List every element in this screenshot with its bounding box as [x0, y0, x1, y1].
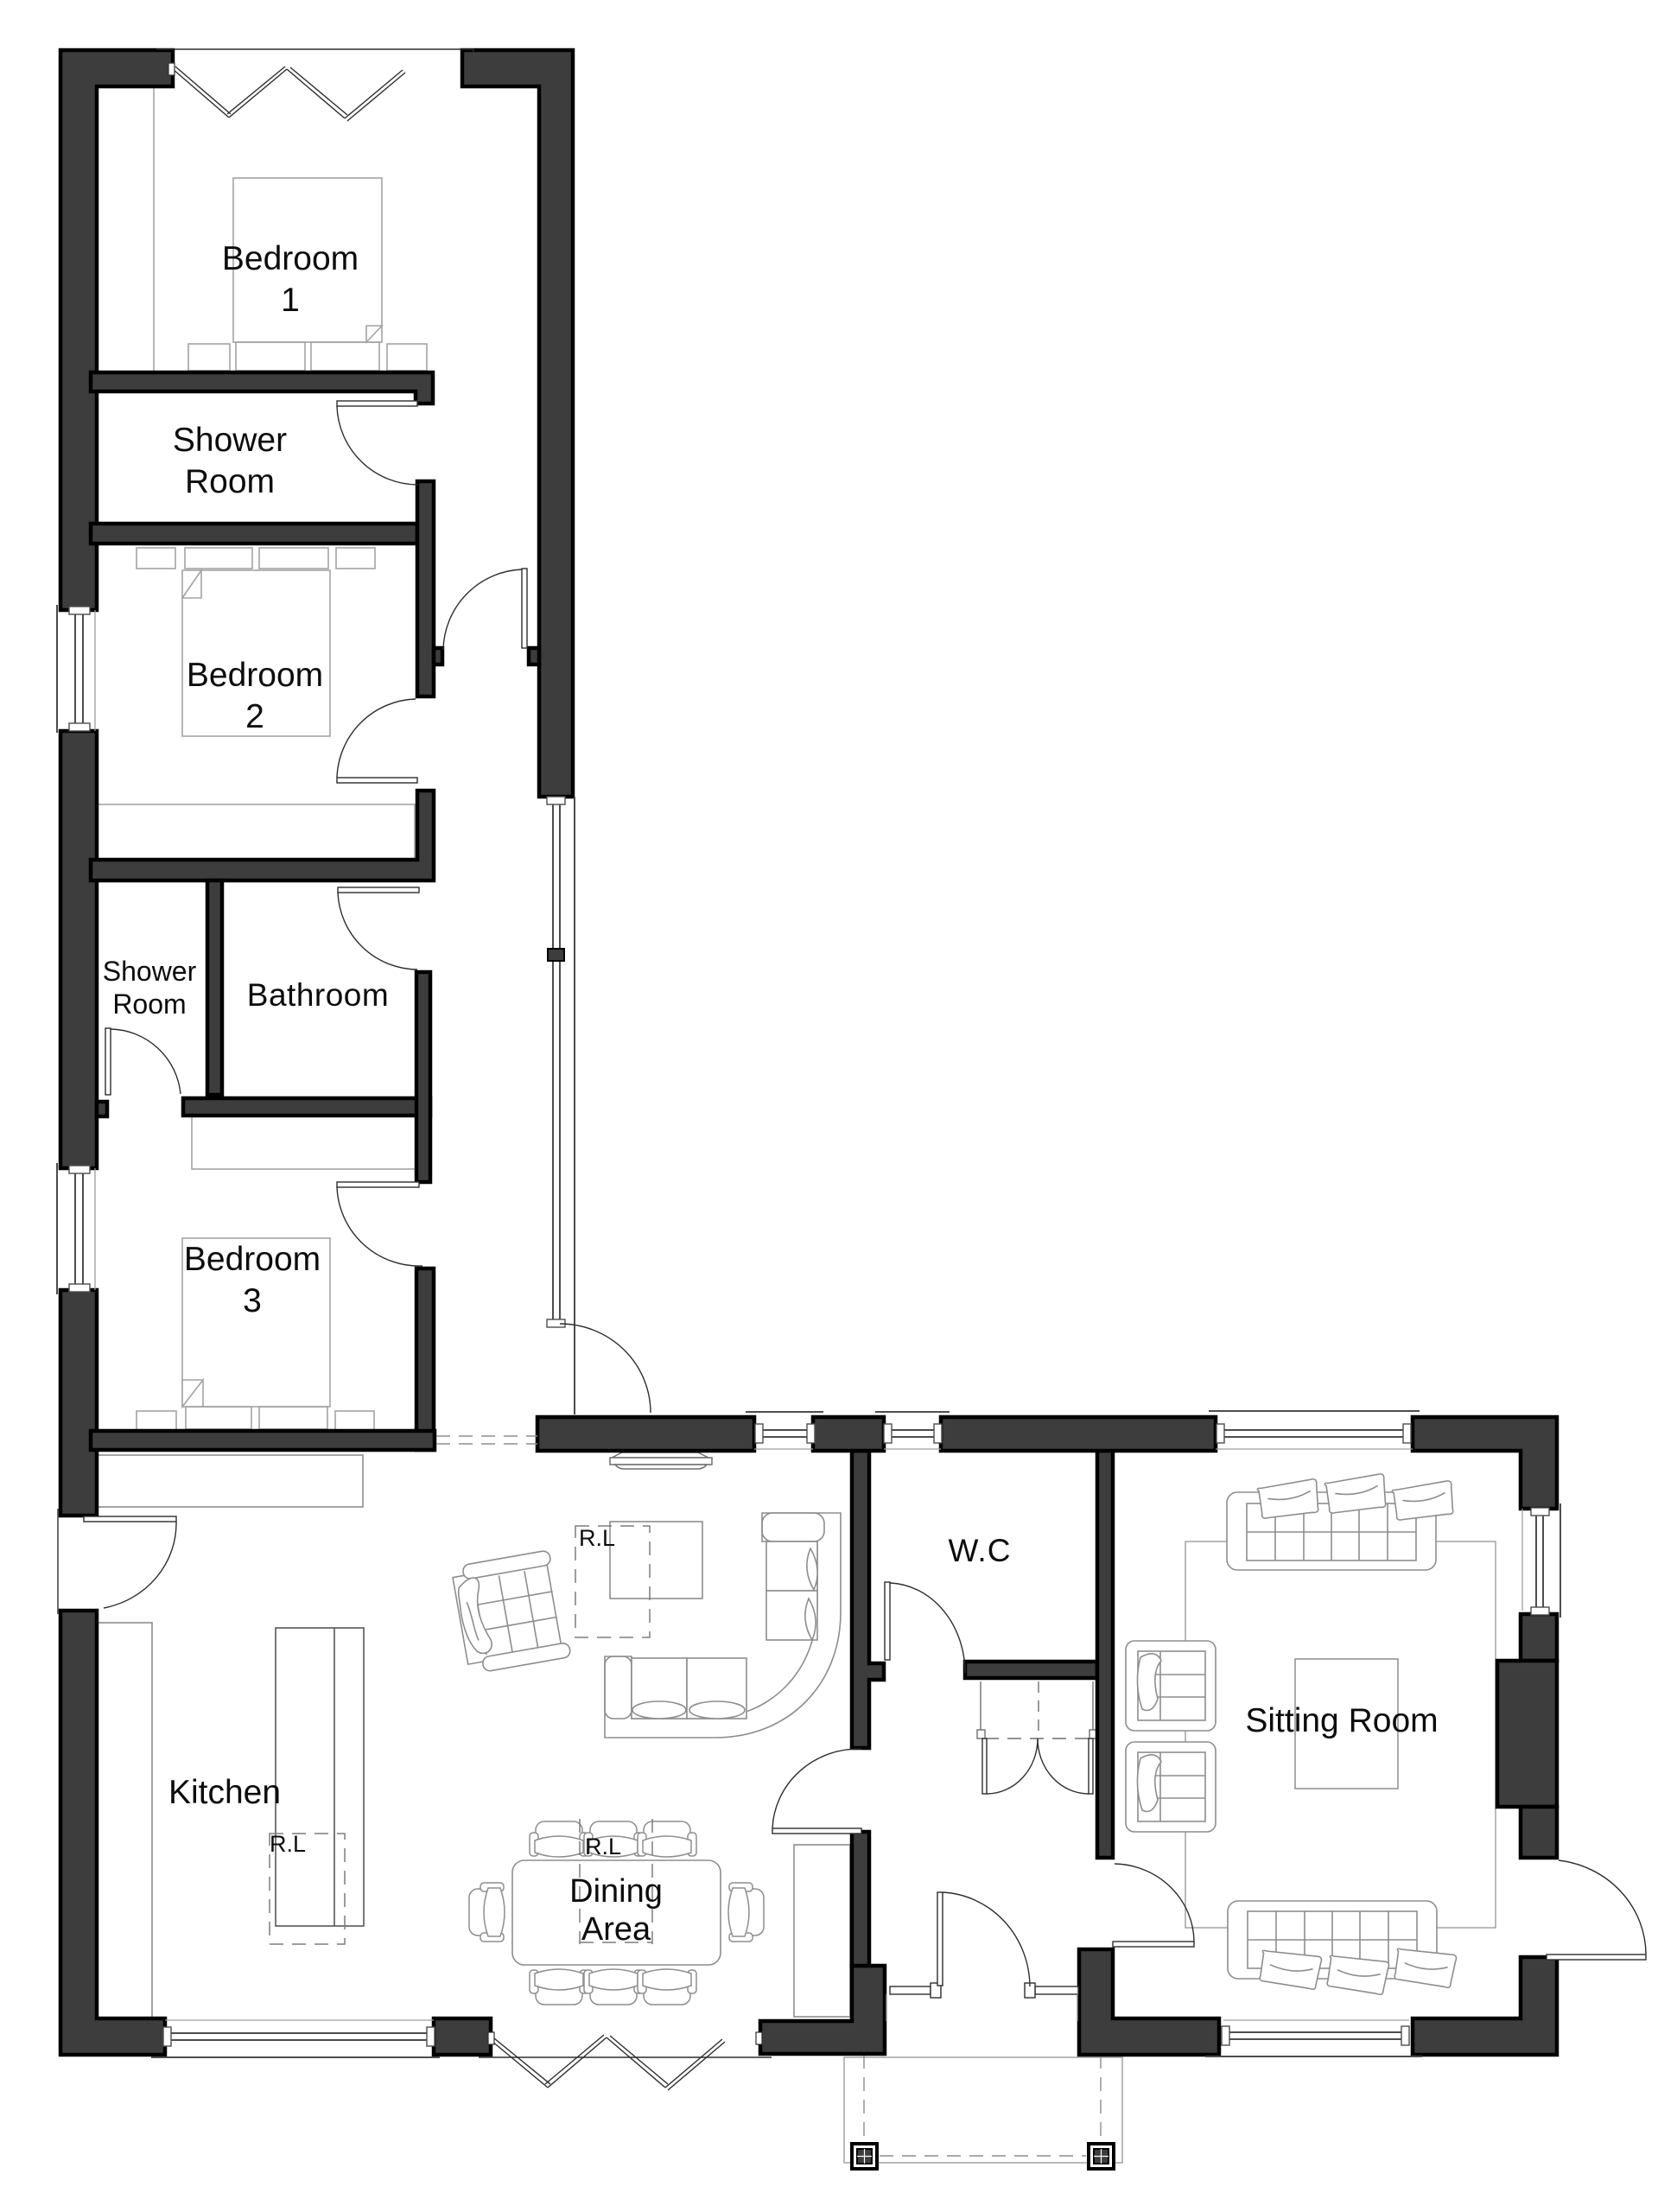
- svg-text:Shower: Shower: [103, 956, 197, 987]
- svg-text:R.L: R.L: [585, 1834, 621, 1859]
- svg-text:Kitchen: Kitchen: [168, 1774, 281, 1811]
- svg-text:Bedroom: Bedroom: [222, 240, 359, 277]
- svg-text:Bedroom: Bedroom: [184, 1241, 321, 1278]
- svg-text:Room: Room: [185, 463, 275, 500]
- svg-text:Shower: Shower: [173, 422, 287, 459]
- svg-text:3: 3: [243, 1282, 262, 1319]
- svg-text:Bathroom: Bathroom: [247, 977, 389, 1013]
- svg-text:W.C: W.C: [949, 1533, 1012, 1568]
- svg-text:1: 1: [281, 282, 300, 319]
- svg-text:R.L: R.L: [270, 1831, 306, 1857]
- svg-text:R.L: R.L: [579, 1525, 615, 1551]
- svg-text:Room: Room: [112, 988, 186, 1020]
- svg-text:Area: Area: [581, 1911, 651, 1948]
- svg-text:Sitting Room: Sitting Room: [1245, 1702, 1438, 1739]
- svg-text:Bedroom: Bedroom: [187, 657, 323, 694]
- svg-text:Dining: Dining: [569, 1873, 663, 1910]
- svg-text:2: 2: [245, 698, 264, 735]
